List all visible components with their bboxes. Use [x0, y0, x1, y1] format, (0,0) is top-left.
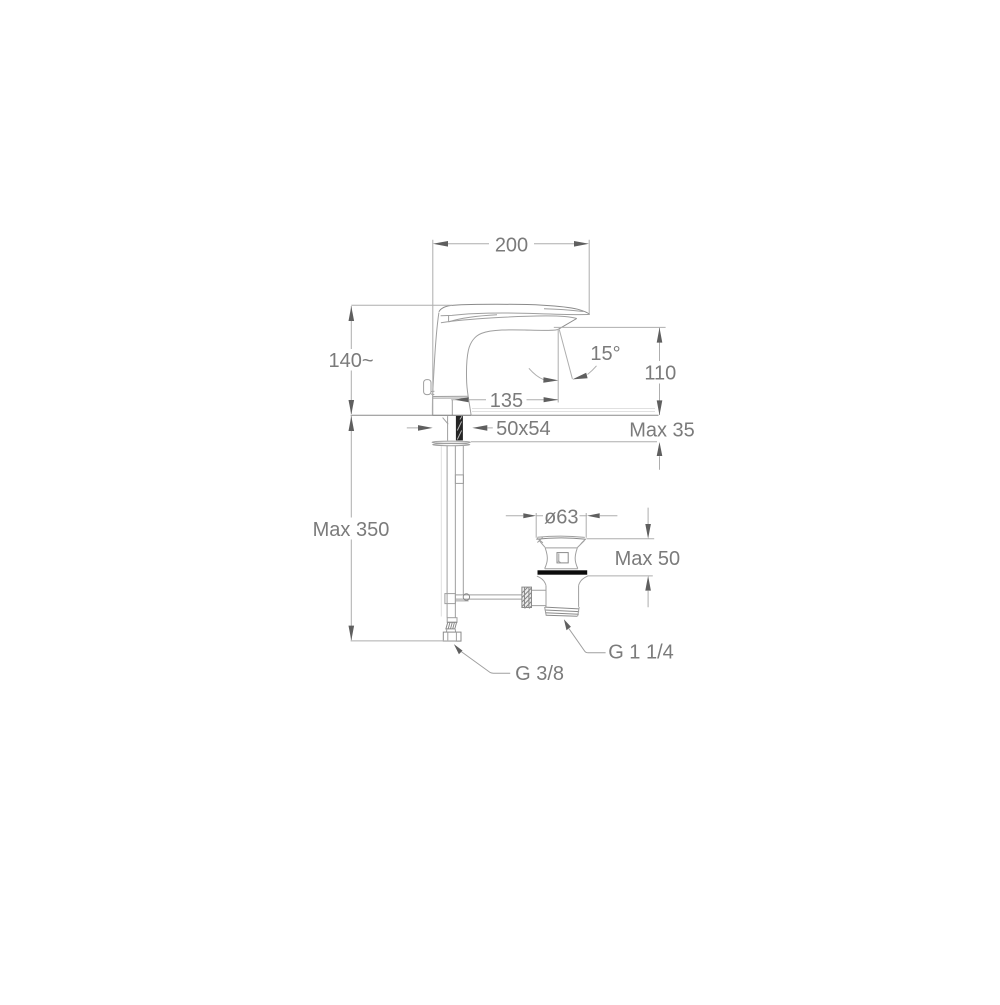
- svg-text:50x54: 50x54: [496, 418, 551, 440]
- svg-text:G 1 1/4: G 1 1/4: [608, 641, 674, 663]
- svg-text:Max 50: Max 50: [615, 548, 681, 570]
- svg-text:140~: 140~: [328, 350, 373, 372]
- svg-text:Max 35: Max 35: [629, 420, 695, 442]
- svg-text:110: 110: [644, 363, 676, 385]
- svg-text:15°: 15°: [590, 343, 620, 365]
- svg-text:Max 350: Max 350: [313, 519, 390, 541]
- svg-text:G 3/8: G 3/8: [515, 663, 564, 685]
- svg-text:ø63: ø63: [544, 506, 578, 528]
- svg-text:200: 200: [495, 234, 528, 256]
- svg-text:135: 135: [490, 390, 523, 412]
